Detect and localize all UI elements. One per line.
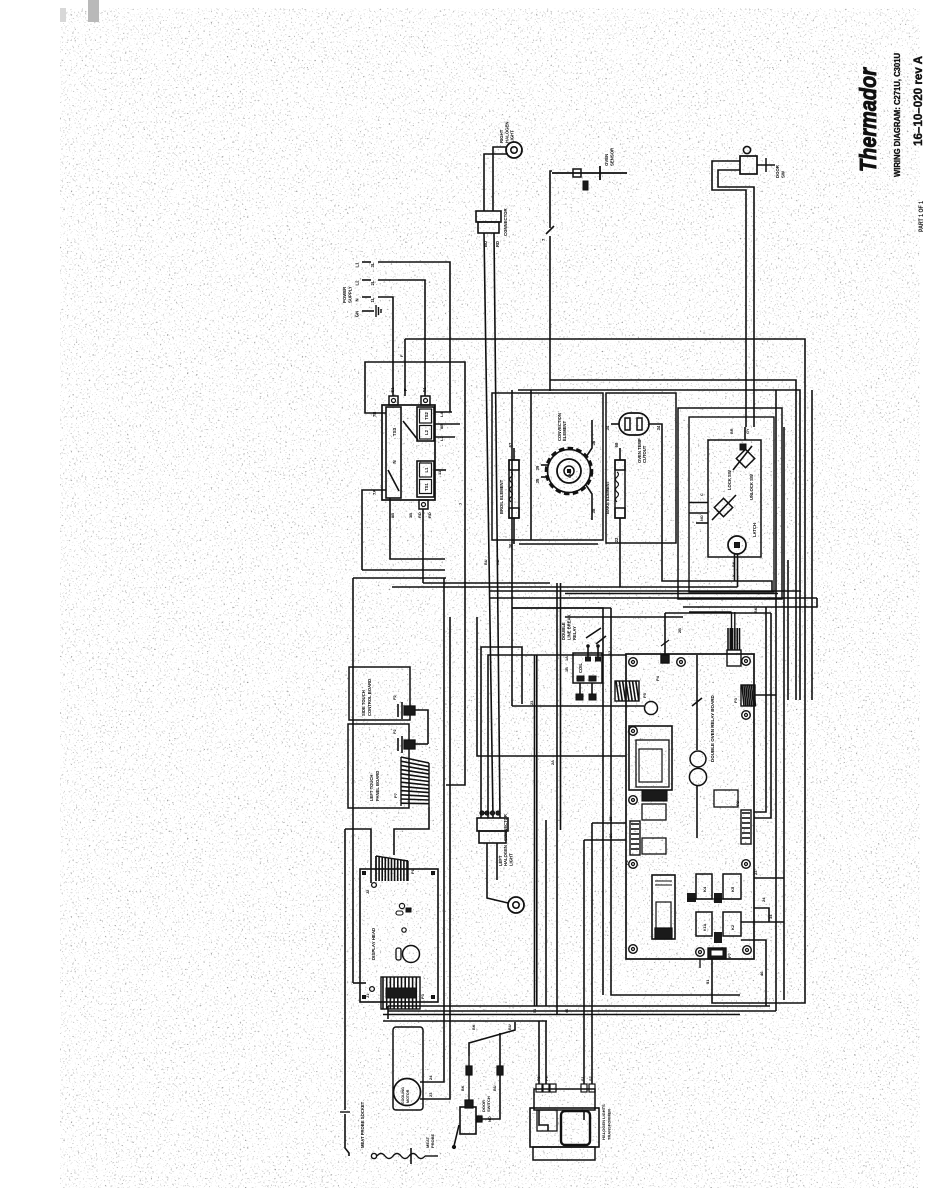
svg-text:DISPLAY HEAD: DISPLAY HEAD	[371, 928, 376, 960]
svg-text:1B: 1B	[565, 667, 569, 672]
svg-text:K5: K5	[730, 886, 735, 892]
svg-text:PART 1 OF 1: PART 1 OF 1	[918, 201, 925, 232]
svg-text:25: 25	[608, 816, 613, 821]
svg-text:34: 34	[768, 914, 773, 919]
svg-text:51: 51	[533, 1009, 537, 1013]
svg-text:GY: GY	[746, 428, 750, 434]
svg-text:J2: J2	[366, 890, 370, 894]
svg-text:P2: P2	[393, 729, 397, 734]
svg-text:35: 35	[535, 478, 540, 483]
svg-text:1A: 1A	[565, 656, 569, 661]
svg-text:L2: L2	[355, 280, 360, 286]
svg-text:23: 23	[530, 701, 534, 705]
svg-text:F: F	[403, 388, 408, 391]
svg-text:RD: RD	[496, 559, 500, 565]
svg-text:A1: A1	[422, 387, 427, 393]
svg-text:NO: NO	[700, 515, 704, 521]
svg-text:51: 51	[705, 979, 710, 984]
svg-text:COOLING: COOLING	[401, 1087, 405, 1104]
svg-text:3B: 3B	[408, 513, 413, 518]
svg-text:LATCH: LATCH	[752, 523, 757, 537]
svg-text:46: 46	[759, 971, 764, 976]
svg-text:24: 24	[761, 897, 766, 902]
svg-text:BR: BR	[730, 428, 734, 434]
svg-text:BAKE ELEMENT: BAKE ELEMENT	[605, 481, 610, 514]
svg-text:LOCK SW: LOCK SW	[727, 470, 732, 490]
svg-text:24: 24	[428, 1075, 433, 1080]
svg-text:N: N	[355, 298, 360, 301]
svg-text:BU: BU	[493, 1085, 497, 1091]
svg-text:CONNECTOR: CONNECTOR	[503, 207, 508, 236]
svg-text:SWITCH: SWITCH	[486, 1096, 491, 1112]
svg-text:WIRING DIAGRAM: C271U, C301U: WIRING DIAGRAM: C271U, C301U	[892, 53, 902, 177]
svg-text:LEFT TOUCH: LEFT TOUCH	[369, 775, 374, 801]
svg-text:TS3: TS3	[392, 427, 397, 436]
svg-text:23: 23	[428, 1092, 433, 1097]
svg-text:36: 36	[591, 440, 596, 445]
svg-text:RELAY: RELAY	[572, 626, 577, 640]
svg-text:P2: P2	[735, 800, 740, 806]
svg-text:BU: BU	[508, 1024, 512, 1030]
svg-text:RD: RD	[495, 241, 500, 247]
svg-text:TS1: TS1	[424, 482, 429, 490]
svg-text:BK: BK	[461, 1085, 465, 1091]
svg-text:BK: BK	[732, 561, 736, 567]
svg-text:P3: P3	[733, 697, 738, 703]
svg-text:LIGHT: LIGHT	[508, 853, 513, 866]
svg-text:46: 46	[565, 1009, 569, 1013]
svg-text:DOOR: DOOR	[775, 164, 780, 178]
svg-text:PROBE: PROBE	[430, 1133, 435, 1148]
svg-text:L1: L1	[355, 262, 360, 268]
svg-text:BROIL ELEMENT: BROIL ELEMENT	[499, 479, 504, 514]
svg-text:1L: 1L	[370, 297, 375, 302]
svg-text:P4: P4	[655, 675, 660, 681]
svg-text:P3: P3	[420, 993, 425, 999]
svg-text:SW: SW	[780, 170, 785, 178]
svg-text:CM: CM	[567, 471, 572, 478]
svg-text:DOUBLE OVEN RELAY BOARD: DOUBLE OVEN RELAY BOARD	[710, 694, 715, 762]
svg-text:ELEMENT: ELEMENT	[562, 421, 567, 441]
svg-text:J1: J1	[366, 994, 370, 998]
svg-text:39: 39	[535, 465, 540, 470]
svg-text:P7: P7	[727, 952, 732, 958]
svg-text:68: 68	[614, 442, 619, 447]
svg-text:S1: S1	[390, 387, 395, 393]
svg-text:CUTOUT: CUTOUT	[642, 445, 647, 463]
svg-text:34: 34	[605, 425, 610, 430]
svg-text:DOUBLE: DOUBLE	[561, 622, 566, 640]
svg-text:SIDE TOUCH: SIDE TOUCH	[361, 690, 366, 716]
svg-text:POWER: POWER	[342, 286, 347, 303]
svg-text:TRANSFORMER: TRANSFORMER	[606, 1109, 611, 1140]
svg-text:PANEL BOARD: PANEL BOARD	[375, 771, 380, 801]
svg-text:GN: GN	[355, 311, 360, 317]
svg-text:SENSOR: SENSOR	[609, 147, 614, 166]
svg-text:P5: P5	[642, 692, 647, 698]
svg-text:SUPPLY: SUPPLY	[347, 286, 352, 303]
svg-text:BK: BK	[754, 607, 758, 613]
svg-text:UNLOCK SW: UNLOCK SW	[749, 474, 754, 500]
svg-text:23: 23	[753, 870, 758, 875]
svg-text:CONTROL BOARD: CONTROL BOARD	[367, 679, 372, 716]
svg-text:NO: NO	[488, 1116, 492, 1122]
svg-text:P2: P2	[393, 695, 397, 700]
svg-text:RD: RD	[427, 512, 432, 518]
svg-text:2L: 2L	[370, 280, 375, 285]
svg-text:BU: BU	[484, 559, 488, 565]
svg-text:P1: P1	[624, 859, 629, 865]
svg-text:34: 34	[656, 425, 661, 430]
svg-text:2A: 2A	[551, 760, 555, 765]
svg-text:16–10–020 rev A: 16–10–020 rev A	[911, 56, 925, 146]
svg-text:MOTOR: MOTOR	[406, 1089, 410, 1103]
svg-text:2B: 2B	[678, 628, 682, 633]
svg-text:L1: L1	[424, 467, 429, 473]
svg-text:MEAT PROBE SOCKET: MEAT PROBE SOCKET	[360, 1101, 365, 1148]
svg-text:22: 22	[614, 537, 619, 542]
svg-text:TS2: TS2	[424, 411, 429, 419]
svg-text:RIGHT: RIGHT	[499, 129, 504, 143]
svg-text:HALOGEN LIGHTS: HALOGEN LIGHTS	[601, 1104, 606, 1140]
svg-text:OVEN: OVEN	[604, 154, 609, 166]
svg-text:K2: K2	[730, 924, 735, 930]
svg-text:38: 38	[591, 508, 596, 513]
svg-text:L2: L2	[424, 429, 429, 435]
svg-text:CONNECTOR: CONNECTOR	[503, 814, 508, 841]
svg-text:LINE BREAK: LINE BREAK	[566, 614, 571, 640]
svg-text:12: 12	[608, 651, 612, 655]
svg-text:COIL: COIL	[578, 663, 583, 673]
svg-text:K4: K4	[702, 886, 707, 892]
svg-text:Thermador: Thermador	[855, 67, 881, 172]
svg-text:K1A: K1A	[703, 923, 707, 931]
svg-text:26: 26	[608, 833, 613, 838]
svg-text:3L: 3L	[370, 262, 375, 267]
svg-text:HALOGEN: HALOGEN	[504, 122, 509, 144]
svg-text:P7: P7	[393, 792, 398, 798]
svg-text:LIGHT: LIGHT	[510, 130, 515, 143]
svg-text:C: C	[700, 493, 704, 496]
svg-text:P1: P1	[410, 868, 415, 874]
svg-text:BK: BK	[472, 1024, 476, 1030]
svg-text:RD: RD	[417, 512, 422, 518]
